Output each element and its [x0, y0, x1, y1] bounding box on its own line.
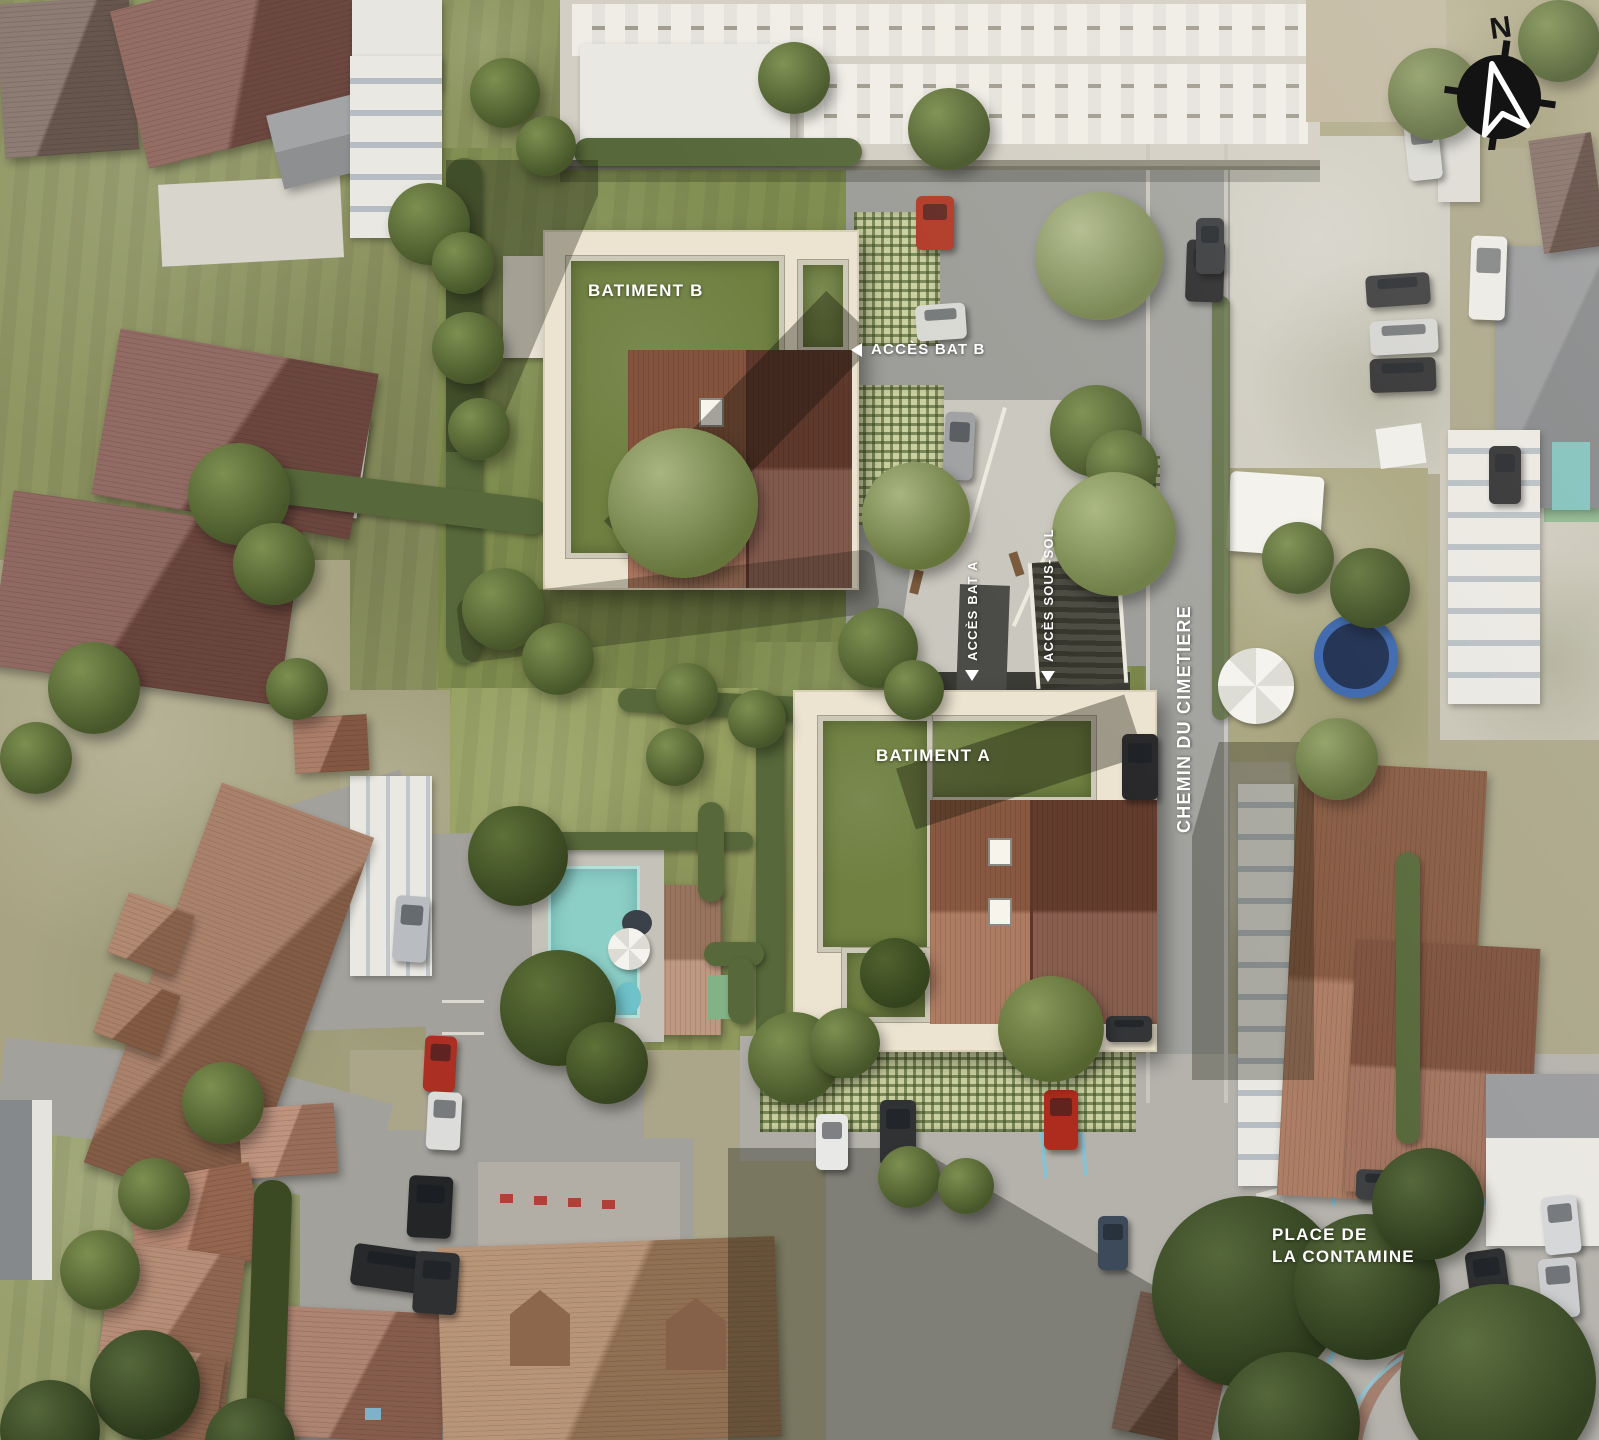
- tree: [522, 623, 594, 695]
- car: [1106, 1016, 1152, 1042]
- shadow-right-building: [1192, 742, 1314, 1080]
- tree: [182, 1062, 264, 1144]
- terrace: [158, 175, 344, 266]
- car-windshield: [822, 1122, 843, 1139]
- label-acces-bat-a-text: ACCÈS BAT A: [965, 560, 980, 661]
- trampoline: [1314, 614, 1398, 698]
- parking-stripe: [442, 1032, 484, 1035]
- terrace-chair: [602, 1200, 615, 1209]
- arrow-left-icon: [965, 670, 979, 681]
- car: [1196, 218, 1224, 274]
- car: [1365, 272, 1431, 308]
- car-windshield: [924, 308, 957, 321]
- tree: [468, 806, 568, 906]
- car-windshield: [422, 1260, 451, 1281]
- car-windshield: [1201, 226, 1219, 243]
- car-windshield: [950, 421, 970, 442]
- car: [1540, 1194, 1582, 1255]
- tree: [938, 1158, 994, 1214]
- tree: [860, 938, 930, 1008]
- hedge-bat-a-west: [756, 698, 784, 1046]
- tree: [884, 660, 944, 720]
- tree: [1262, 522, 1334, 594]
- car: [406, 1175, 453, 1239]
- tree: [1035, 192, 1163, 320]
- car: [412, 1251, 460, 1316]
- car-windshield: [1377, 277, 1419, 289]
- car-windshield: [1128, 743, 1151, 763]
- car-windshield: [433, 1100, 456, 1119]
- car: [426, 1091, 463, 1151]
- garden-shed-roof: [293, 714, 370, 774]
- car-windshield: [886, 1109, 909, 1129]
- car-windshield: [1477, 247, 1501, 273]
- tree: [266, 658, 328, 720]
- car: [1369, 318, 1439, 356]
- arrow-left-icon: [1041, 671, 1055, 682]
- tree: [90, 1330, 200, 1440]
- car: [916, 196, 954, 250]
- tree: [516, 116, 576, 176]
- batiment-a-building: [793, 690, 1157, 1052]
- car-windshield: [400, 905, 423, 926]
- label-place-de-la-contamine: PLACE DE LA CONTAMINE: [1272, 1224, 1415, 1268]
- picnic-blanket: [1375, 423, 1426, 469]
- tree: [448, 398, 510, 460]
- car-windshield: [1114, 1020, 1143, 1028]
- car-windshield: [1472, 1257, 1500, 1278]
- car: [1469, 235, 1508, 320]
- tree: [432, 312, 504, 384]
- terrace-chair: [534, 1196, 547, 1205]
- car-windshield: [1382, 324, 1426, 336]
- hedge-right-garden: [1396, 852, 1420, 1144]
- car: [1369, 357, 1436, 393]
- label-acces-bat-b-text: ACCÈS BAT B: [871, 341, 986, 358]
- label-chemin-du-cimetiere: CHEMIN DU CIMETIERE: [1174, 613, 1198, 833]
- site-plan-aerial: BATIMENT B BATIMENT A ACCÈS BAT B ACCÈS …: [0, 0, 1599, 1440]
- tree: [1330, 548, 1410, 628]
- parking-stripe: [442, 1000, 484, 1003]
- tree: [862, 462, 970, 570]
- tree: [656, 663, 718, 725]
- car: [392, 895, 431, 963]
- car: [915, 302, 967, 341]
- car: [816, 1114, 848, 1170]
- roof-skylight: [988, 838, 1012, 866]
- car-windshield: [1545, 1265, 1571, 1285]
- tree: [470, 58, 540, 128]
- car: [1098, 1216, 1128, 1270]
- hedge-roadside: [1212, 296, 1230, 720]
- label-acces-sous-sol: ACCÈS SOUS-SOL: [1038, 532, 1058, 682]
- tree: [48, 642, 140, 734]
- roof-skylight-blue: [365, 1408, 381, 1420]
- car-windshield: [1495, 454, 1516, 471]
- tree: [646, 728, 704, 786]
- car-windshield: [1381, 362, 1424, 374]
- tree: [566, 1022, 648, 1104]
- car-windshield: [1050, 1098, 1072, 1116]
- car-windshield: [1103, 1224, 1122, 1240]
- existing-building-gray: [0, 1100, 52, 1280]
- tree: [60, 1230, 140, 1310]
- label-batiment-b: BATIMENT B: [588, 281, 704, 301]
- arrow-left-icon: [851, 343, 862, 357]
- umbrella-white: [1218, 648, 1294, 724]
- label-acces-bat-b: ACCÈS BAT B: [851, 341, 986, 358]
- tree: [1052, 472, 1176, 596]
- tree: [810, 1008, 880, 1078]
- car-windshield: [1547, 1203, 1572, 1223]
- label-place-line1: PLACE DE: [1272, 1224, 1415, 1246]
- tree: [998, 976, 1104, 1082]
- hedge-cemetery: [574, 138, 862, 166]
- terrace-chair: [568, 1198, 581, 1207]
- car: [1489, 446, 1521, 504]
- tree: [908, 88, 990, 170]
- tree: [432, 232, 494, 294]
- tree: [758, 42, 830, 114]
- tree: [878, 1146, 940, 1208]
- car: [942, 411, 976, 480]
- car-windshield: [430, 1043, 451, 1061]
- label-acces-sous-sol-text: ACCÈS SOUS-SOL: [1041, 528, 1056, 662]
- hedge-pool-east: [728, 958, 754, 1024]
- compass-north-label: N: [1488, 10, 1514, 46]
- mini-pool-blue: [1552, 442, 1590, 510]
- label-acces-bat-a: ACCÈS BAT A: [962, 571, 982, 681]
- north-compass: N: [1444, 0, 1556, 150]
- umbrella-white: [608, 928, 650, 970]
- tree: [118, 1158, 190, 1230]
- existing-house-roof: [277, 1306, 449, 1440]
- car: [423, 1035, 458, 1093]
- existing-building-roof: [1486, 1074, 1599, 1138]
- hedge-pool-east: [698, 802, 724, 902]
- parasol-teal: [615, 982, 641, 1014]
- car-windshield: [416, 1184, 445, 1204]
- tree: [1296, 718, 1378, 800]
- tree: [233, 523, 315, 605]
- tree: [0, 722, 72, 794]
- cemetery-graves: [804, 64, 1308, 144]
- tree: [608, 428, 758, 578]
- roof-skylight: [988, 898, 1012, 926]
- label-batiment-a: BATIMENT A: [876, 746, 991, 766]
- car-windshield: [367, 1250, 419, 1270]
- car: [1044, 1090, 1078, 1150]
- tree: [728, 690, 786, 748]
- car: [1122, 734, 1158, 800]
- label-place-line2: LA CONTAMINE: [1272, 1246, 1415, 1268]
- terrace-chair: [500, 1194, 513, 1203]
- car-windshield: [923, 204, 947, 220]
